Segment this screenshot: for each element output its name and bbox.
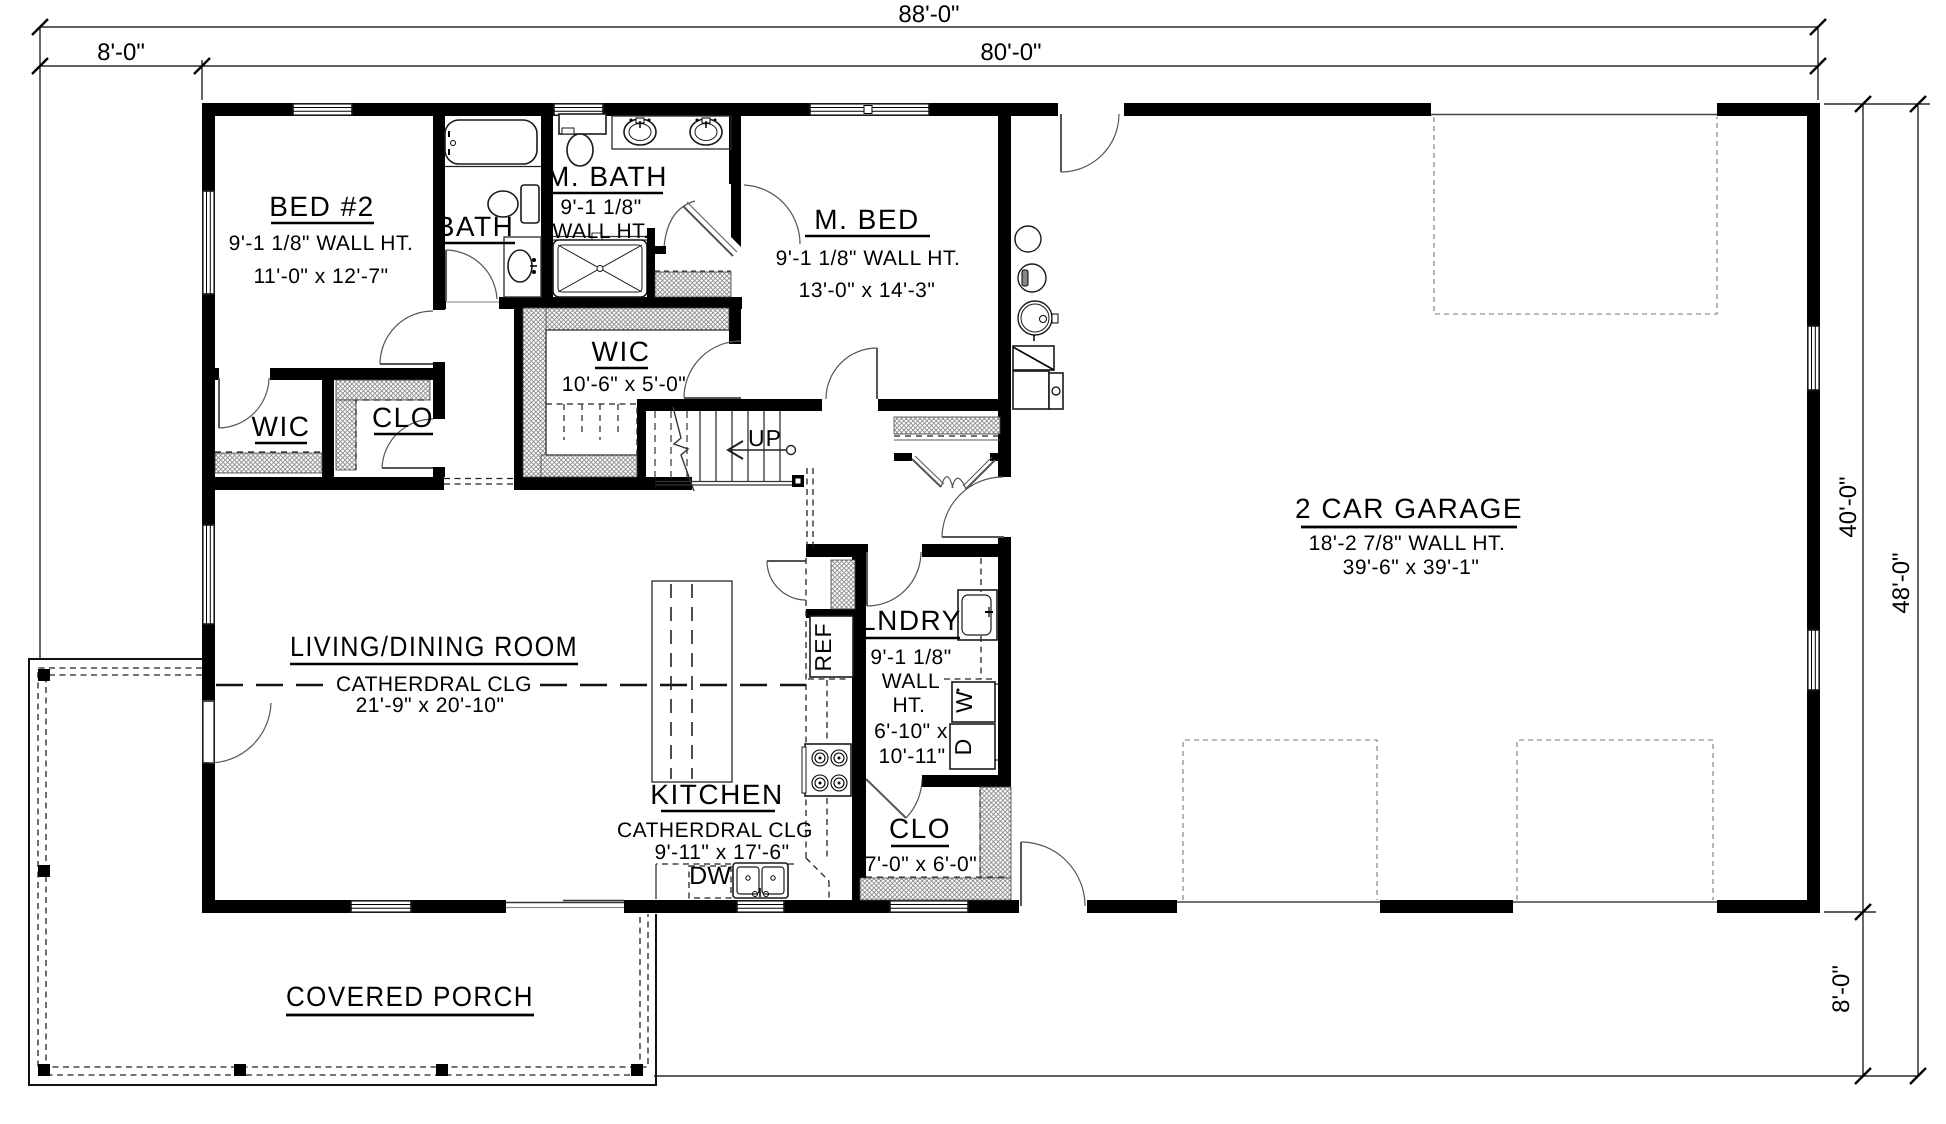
svg-text:WIC: WIC <box>592 336 651 367</box>
svg-text:9'-11" x 17'-6": 9'-11" x 17'-6" <box>654 841 789 864</box>
svg-text:9'-1 1/8": 9'-1 1/8" <box>870 646 951 669</box>
svg-text:REF: REF <box>810 623 836 672</box>
svg-text:W: W <box>951 691 977 713</box>
svg-text:BATH: BATH <box>436 211 515 242</box>
svg-text:BED #2: BED #2 <box>269 191 375 222</box>
svg-text:80'-0": 80'-0" <box>980 39 1041 66</box>
svg-text:CATHERDRAL CLG: CATHERDRAL CLG <box>336 673 532 696</box>
svg-text:CLO: CLO <box>889 813 951 844</box>
svg-text:M. BATH: M. BATH <box>546 161 668 192</box>
svg-text:9'-1 1/8": 9'-1 1/8" <box>560 196 641 219</box>
svg-text:LNDRY: LNDRY <box>860 605 962 636</box>
svg-text:21'-9" x 20'-10": 21'-9" x 20'-10" <box>356 694 505 717</box>
svg-text:WALL: WALL <box>882 670 940 693</box>
svg-text:LIVING/DINING ROOM: LIVING/DINING ROOM <box>290 631 578 662</box>
svg-text:CATHERDRAL CLG: CATHERDRAL CLG <box>617 819 813 842</box>
svg-text:9'-1 1/8" WALL HT.: 9'-1 1/8" WALL HT. <box>776 247 961 270</box>
svg-text:88'-0": 88'-0" <box>898 1 959 28</box>
svg-text:D: D <box>950 739 976 756</box>
svg-text:10'-6" x 5'-0": 10'-6" x 5'-0" <box>562 373 686 396</box>
svg-text:18'-2 7/8" WALL HT.: 18'-2 7/8" WALL HT. <box>1309 532 1506 555</box>
svg-text:HT.: HT. <box>893 694 926 717</box>
svg-text:9'-1 1/8" WALL HT.: 9'-1 1/8" WALL HT. <box>229 232 414 255</box>
svg-text:39'-6" x 39'-1": 39'-6" x 39'-1" <box>1343 556 1480 579</box>
svg-text:8'-0": 8'-0" <box>97 39 145 66</box>
svg-text:7'-0" x 6'-0": 7'-0" x 6'-0" <box>865 853 977 876</box>
svg-text:11'-0" x 12'-7": 11'-0" x 12'-7" <box>253 265 388 288</box>
svg-text:48'-0": 48'-0" <box>1888 552 1915 613</box>
svg-text:WIC: WIC <box>252 411 311 442</box>
svg-text:10'-11": 10'-11" <box>878 745 945 768</box>
svg-text:CLO: CLO <box>372 402 434 433</box>
svg-text:M. BED: M. BED <box>814 204 919 235</box>
svg-text:WALL HT.: WALL HT. <box>553 220 650 243</box>
svg-text:2 CAR GARAGE: 2 CAR GARAGE <box>1295 493 1523 524</box>
svg-text:COVERED PORCH: COVERED PORCH <box>286 981 534 1012</box>
svg-text:KITCHEN: KITCHEN <box>650 779 783 810</box>
svg-text:8'-0": 8'-0" <box>1828 965 1855 1013</box>
svg-text:UP: UP <box>748 425 782 451</box>
svg-text:DW: DW <box>689 862 731 890</box>
svg-text:6'-10" x: 6'-10" x <box>874 720 948 743</box>
svg-text:13'-0" x 14'-3": 13'-0" x 14'-3" <box>799 279 936 302</box>
svg-text:40'-0": 40'-0" <box>1835 476 1862 537</box>
